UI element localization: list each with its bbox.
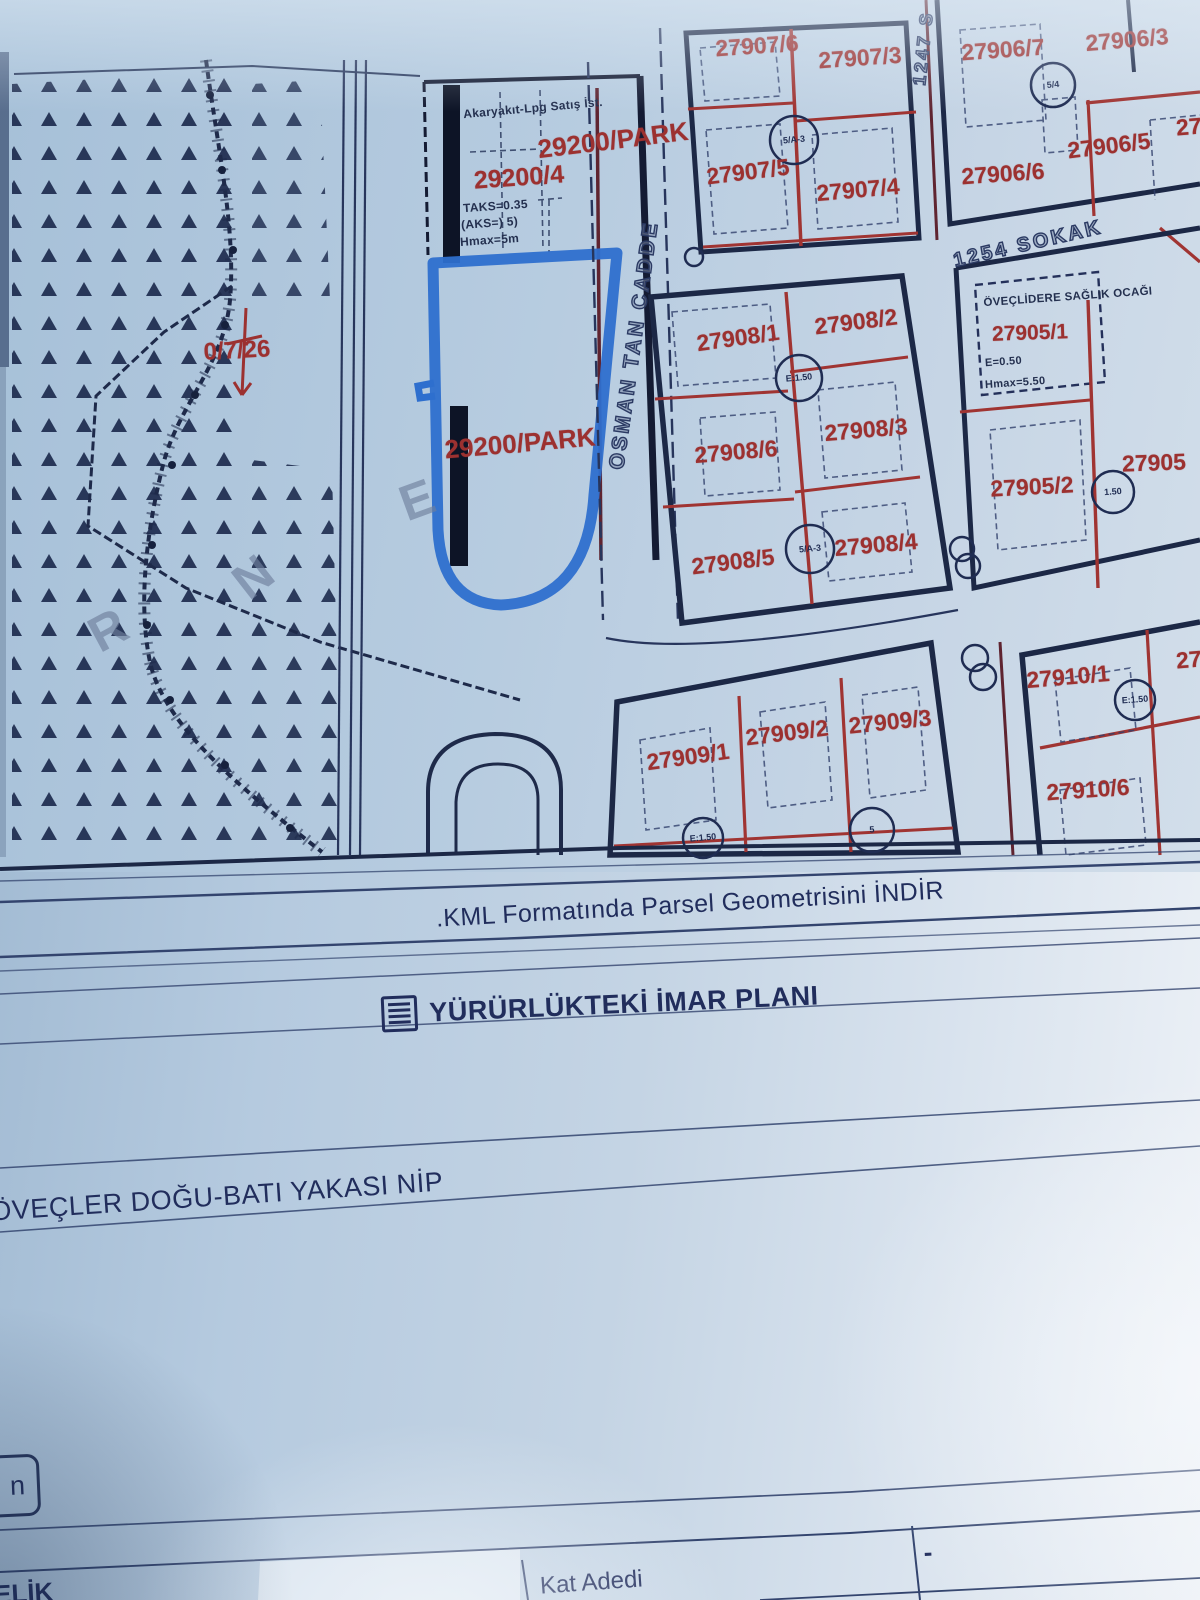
parcel-label-29200-4: 29200/4 — [473, 162, 565, 193]
zoning-marker: 5 — [869, 825, 875, 834]
parcel-label-27905-1: 27905/1 — [992, 321, 1069, 345]
tree-symbol-area — [12, 70, 342, 855]
zoning-marker: 5/A-3 — [783, 135, 806, 146]
map-red-note: 0/7/26 — [203, 337, 271, 364]
road-lines-left — [338, 60, 366, 855]
block-27905 — [956, 228, 1200, 588]
zoning-marker: 5/A-3 — [799, 544, 822, 555]
parcel-label-27906-6: 27906/6 — [961, 160, 1046, 189]
zoning-marker: 1.50 — [1104, 487, 1122, 497]
bottom-corner-text: ELİK — [0, 1578, 54, 1600]
parcel-label-27907-6: 27907/6 — [715, 32, 800, 61]
photographed-parcel-document: 27907/6 27907/3 27906/7 27906/3 27906/5 … — [0, 0, 1200, 1600]
building-footprint — [450, 406, 468, 566]
parcel-label-27910-6: 27910/6 — [1046, 776, 1131, 805]
n-button[interactable]: n — [0, 1454, 41, 1521]
parcel-label-cut-right-top: 27 — [1175, 114, 1200, 139]
plan-list-icon — [381, 995, 419, 1033]
parcel-label-27905-2: 27905/2 — [990, 473, 1074, 500]
zoning-marker: 5/4 — [1046, 80, 1059, 90]
kat-adedi-value: - — [923, 1539, 933, 1565]
block-27910 — [1022, 622, 1200, 855]
parcel-label-27905-cut: 27905 — [1122, 450, 1187, 475]
document-rules — [0, 851, 1200, 1600]
curved-road — [428, 734, 561, 855]
n-button-label: n — [9, 1470, 25, 1502]
note-kaks: (AKS=) 5) — [461, 215, 519, 231]
parcel-label-cut-right-mid: 27 — [1175, 647, 1200, 672]
paper-edge-shadow — [0, 52, 9, 367]
zoning-marker: E:1.50 — [1121, 695, 1148, 706]
parcel-label-27907-3: 27907/3 — [818, 44, 903, 73]
parcel-label-27906-7: 27906/7 — [961, 36, 1046, 65]
building-footprint — [443, 85, 460, 263]
